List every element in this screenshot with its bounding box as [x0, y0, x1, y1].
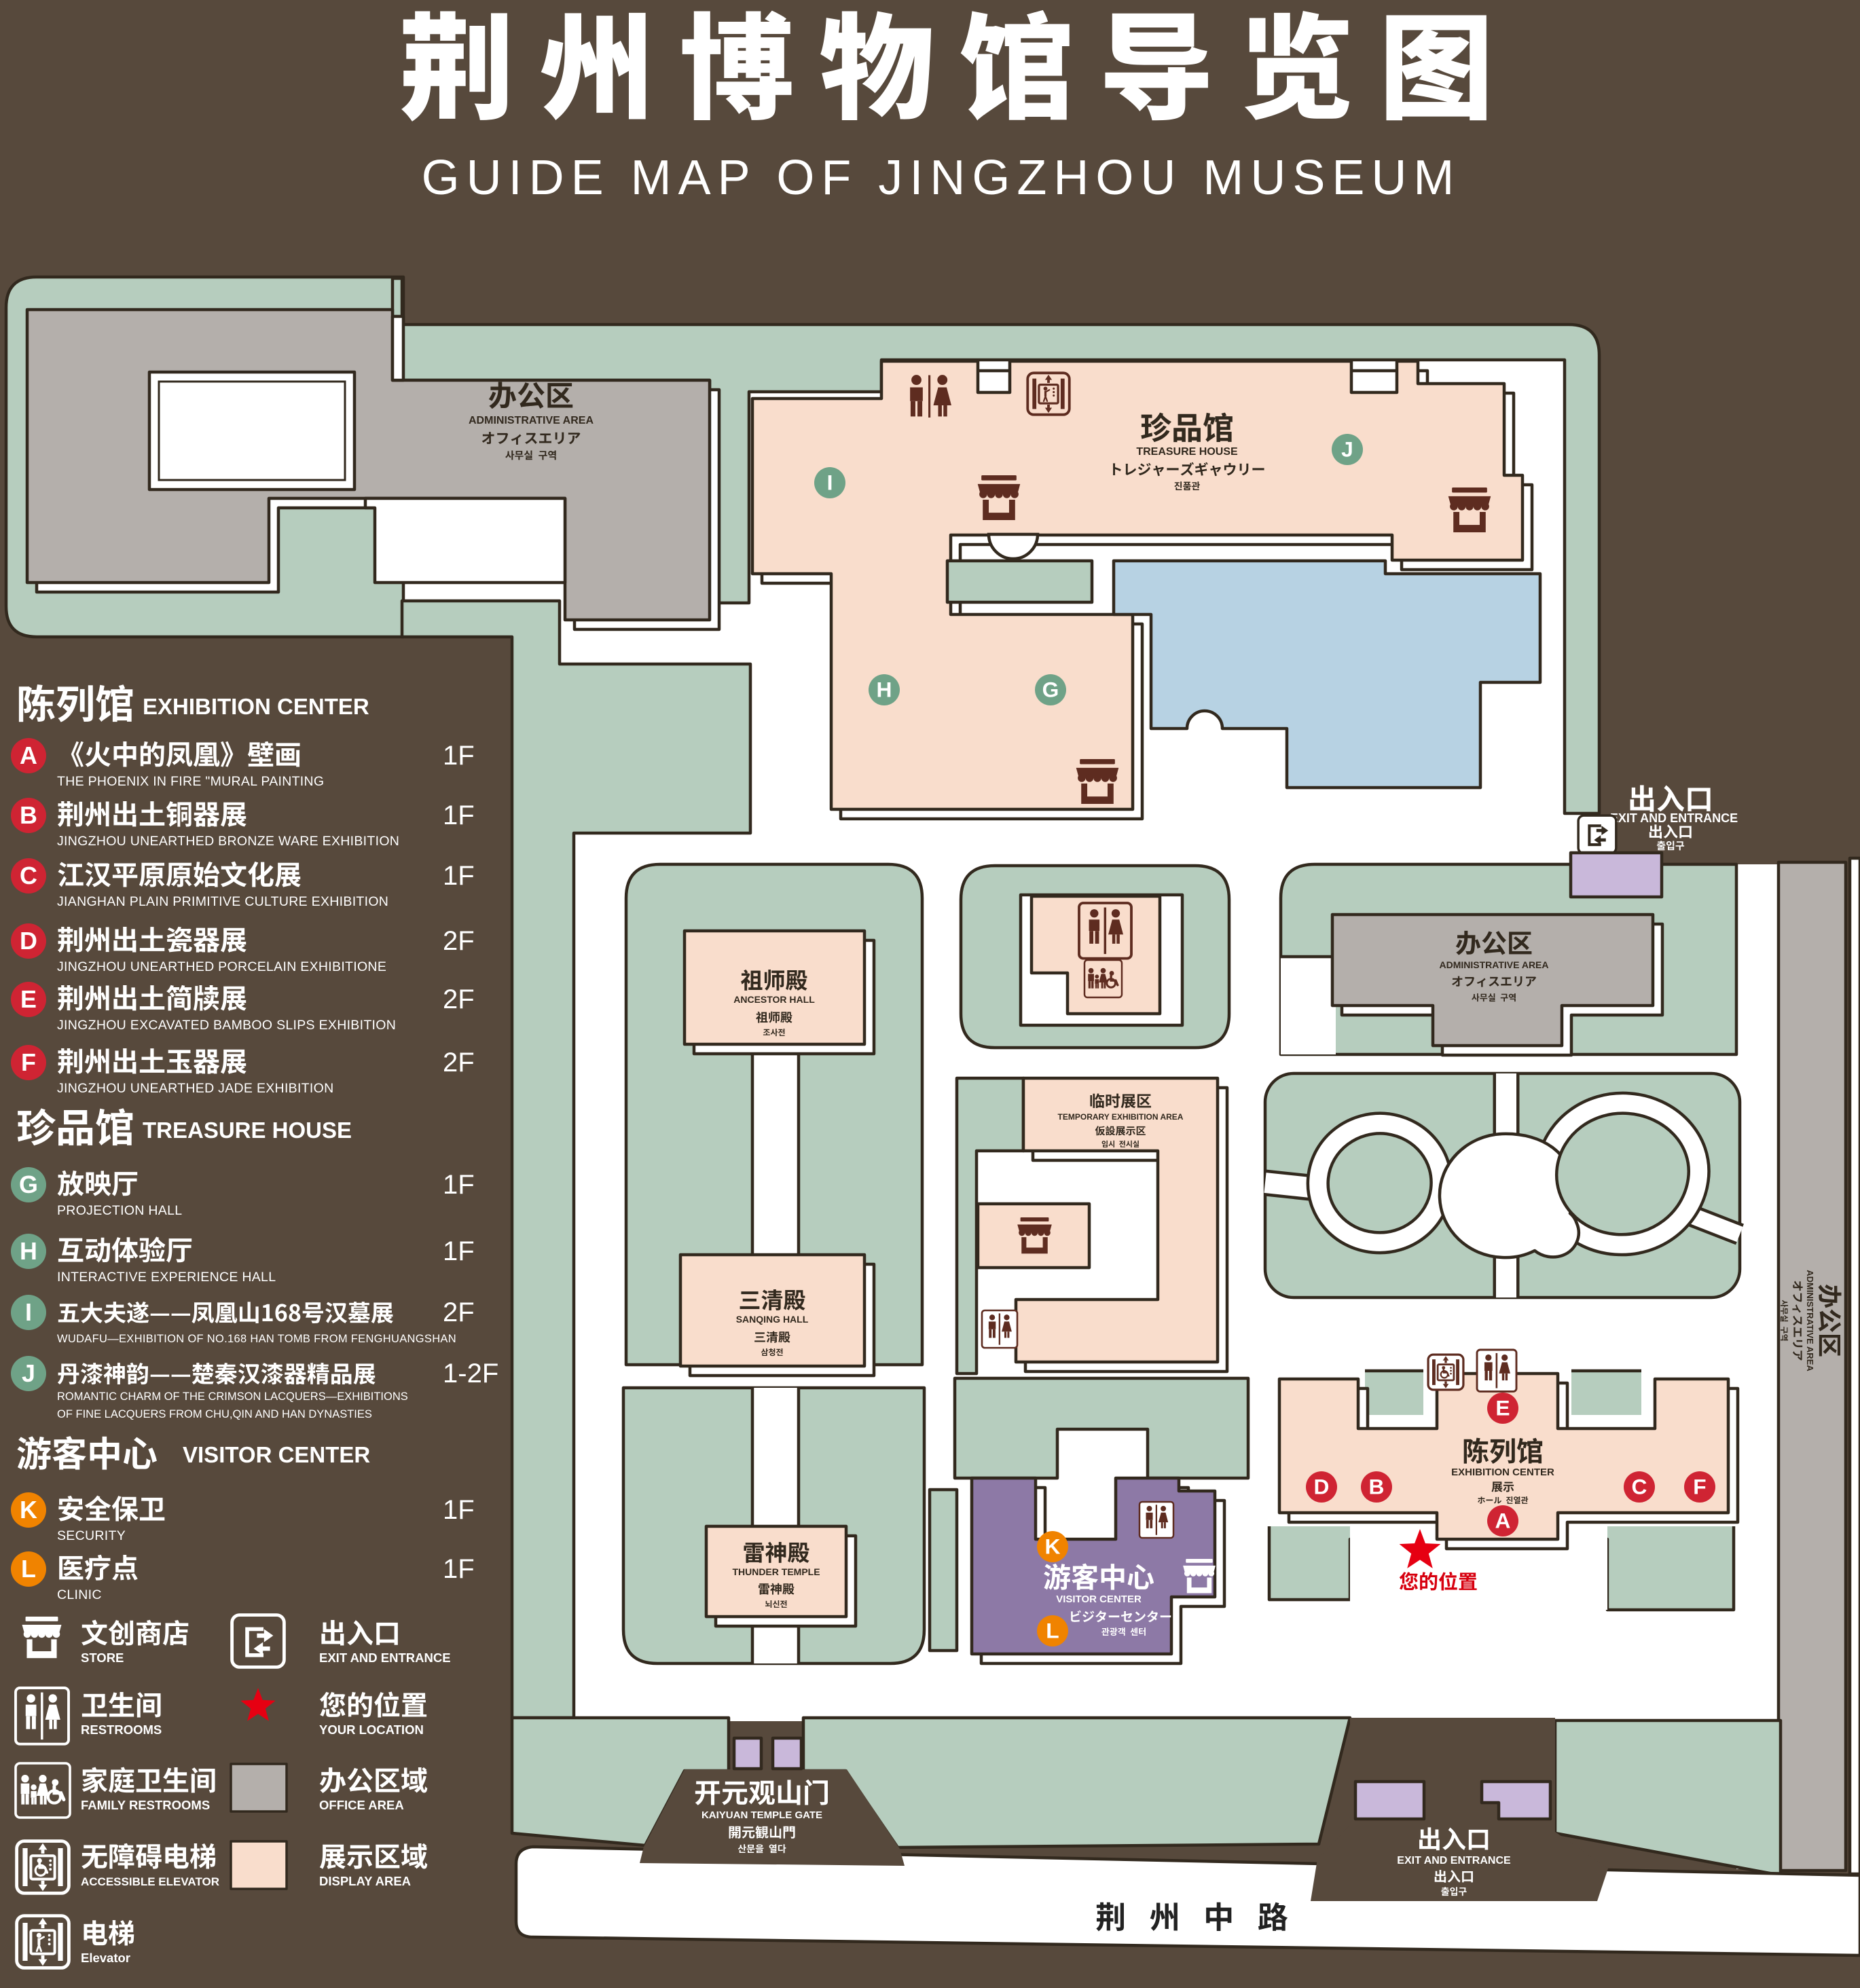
svg-text:THE PHOENIX IN FIRE "MURAL PAI: THE PHOENIX IN FIRE "MURAL PAINTING: [57, 774, 324, 789]
svg-text:1F: 1F: [443, 800, 475, 830]
svg-text:YOUR LOCATION: YOUR LOCATION: [319, 1723, 424, 1737]
svg-text:1F: 1F: [443, 1554, 475, 1584]
svg-text:H: H: [877, 678, 892, 702]
svg-text:2F: 2F: [443, 1048, 475, 1078]
svg-text:THUNDER TEMPLE: THUNDER TEMPLE: [732, 1566, 820, 1577]
svg-text:TREASURE HOUSE: TREASURE HOUSE: [143, 1118, 352, 1143]
svg-text:ADMINISTRATIVE AREA: ADMINISTRATIVE AREA: [469, 415, 594, 426]
svg-text:ROMANTIC CHARM OF THE CRIMSON: ROMANTIC CHARM OF THE CRIMSON LACQUERS—E…: [57, 1391, 408, 1403]
svg-text:TREASURE HOUSE: TREASURE HOUSE: [1136, 446, 1238, 458]
svg-text:JINGZHOU UNEARTHED BRONZE WARE: JINGZHOU UNEARTHED BRONZE WARE EXHIBITIO…: [57, 834, 399, 849]
svg-text:1-2F: 1-2F: [443, 1359, 498, 1388]
svg-text:L: L: [1046, 1619, 1059, 1643]
svg-text:DISPLAY AREA: DISPLAY AREA: [319, 1874, 411, 1888]
svg-text:GUIDE MAP OF JINGZHOU MUSEUM: GUIDE MAP OF JINGZHOU MUSEUM: [422, 151, 1461, 205]
svg-text:B: B: [20, 802, 37, 829]
svg-text:1F: 1F: [443, 1170, 475, 1200]
svg-text:WUDAFU—EXHIBITION OF NO.168 HA: WUDAFU—EXHIBITION OF NO.168 HAN TOMB FRO…: [57, 1333, 456, 1345]
svg-text:OF FINE LACQUERS FROM CHU,QIN: OF FINE LACQUERS FROM CHU,QIN AND HAN DY…: [57, 1408, 372, 1420]
svg-text:EXHIBITION CENTER: EXHIBITION CENTER: [1451, 1467, 1554, 1478]
svg-text:JINGZHOU EXCAVATED BAMBOO SLIP: JINGZHOU EXCAVATED BAMBOO SLIPS EXHIBITI…: [57, 1018, 396, 1033]
svg-text:ADMINISTRATIVE AREA: ADMINISTRATIVE AREA: [1805, 1270, 1815, 1372]
svg-text:B: B: [1369, 1475, 1385, 1499]
svg-text:VISITOR CENTER: VISITOR CENTER: [183, 1442, 370, 1467]
svg-text:E: E: [20, 986, 37, 1013]
svg-text:2F: 2F: [443, 1297, 475, 1327]
svg-text:C: C: [1632, 1475, 1647, 1499]
svg-text:K: K: [20, 1496, 37, 1524]
svg-text:1F: 1F: [443, 741, 475, 771]
svg-text:INTERACTIVE EXPERIENCE HALL: INTERACTIVE EXPERIENCE HALL: [57, 1270, 276, 1285]
svg-text:JINGZHOU UNEARTHED PORCELAIN E: JINGZHOU UNEARTHED PORCELAIN EXHIBITIONE: [57, 959, 386, 974]
svg-text:1F: 1F: [443, 1236, 475, 1266]
svg-text:SANQING HALL: SANQING HALL: [736, 1314, 809, 1325]
svg-text:ADMINISTRATIVE AREA: ADMINISTRATIVE AREA: [1440, 959, 1549, 970]
svg-text:FAMILY RESTROOMS: FAMILY RESTROOMS: [81, 1798, 210, 1812]
svg-text:D: D: [1314, 1475, 1330, 1499]
svg-text:EXIT AND ENTRANCE: EXIT AND ENTRANCE: [319, 1651, 451, 1665]
svg-text:I: I: [827, 471, 833, 495]
svg-text:RESTROOMS: RESTROOMS: [81, 1723, 162, 1737]
svg-text:JINGZHOU UNEARTHED JADE EXHIBI: JINGZHOU UNEARTHED JADE EXHIBITION: [57, 1081, 333, 1096]
svg-text:J: J: [22, 1360, 35, 1387]
svg-text:G: G: [1042, 678, 1059, 702]
svg-text:A: A: [20, 742, 37, 769]
svg-text:ANCESTOR HALL: ANCESTOR HALL: [733, 994, 815, 1005]
svg-text:VISITOR CENTER: VISITOR CENTER: [1056, 1594, 1142, 1605]
svg-text:OFFICE AREA: OFFICE AREA: [319, 1798, 404, 1812]
svg-text:Elevator: Elevator: [81, 1951, 130, 1965]
svg-text:CLINIC: CLINIC: [57, 1587, 102, 1602]
svg-text:A: A: [1495, 1509, 1511, 1533]
svg-text:I: I: [25, 1299, 32, 1326]
svg-text:C: C: [20, 862, 37, 889]
svg-text:EXIT AND ENTRANCE: EXIT AND ENTRANCE: [1610, 811, 1738, 825]
svg-text:2F: 2F: [443, 984, 475, 1014]
svg-text:ACCESSIBLE ELEVATOR: ACCESSIBLE ELEVATOR: [81, 1875, 219, 1888]
svg-text:F: F: [21, 1049, 36, 1076]
svg-text:1F: 1F: [443, 861, 475, 891]
svg-text:G: G: [19, 1171, 38, 1198]
svg-text:TEMPORARY EXHIBITION AREA: TEMPORARY EXHIBITION AREA: [1058, 1112, 1184, 1122]
svg-text:JIANGHAN PLAIN PRIMITIVE CULTU: JIANGHAN PLAIN PRIMITIVE CULTURE EXHIBIT…: [57, 894, 388, 909]
svg-text:EXHIBITION CENTER: EXHIBITION CENTER: [143, 694, 369, 719]
svg-text:H: H: [20, 1238, 37, 1265]
svg-text:D: D: [20, 927, 37, 955]
svg-text:J: J: [1341, 437, 1353, 462]
svg-text:STORE: STORE: [81, 1651, 124, 1665]
svg-text:L: L: [21, 1556, 36, 1583]
svg-text:2F: 2F: [443, 926, 475, 956]
svg-text:KAIYUAN TEMPLE GATE: KAIYUAN TEMPLE GATE: [701, 1809, 822, 1821]
svg-text:E: E: [1495, 1396, 1510, 1420]
svg-text:F: F: [1693, 1475, 1706, 1499]
svg-text:SECURITY: SECURITY: [57, 1528, 126, 1543]
svg-text:EXIT AND ENTRANCE: EXIT AND ENTRANCE: [1397, 1855, 1511, 1866]
svg-text:1F: 1F: [443, 1495, 475, 1525]
svg-text:PROJECTION HALL: PROJECTION HALL: [57, 1203, 182, 1218]
svg-text:K: K: [1045, 1534, 1061, 1559]
